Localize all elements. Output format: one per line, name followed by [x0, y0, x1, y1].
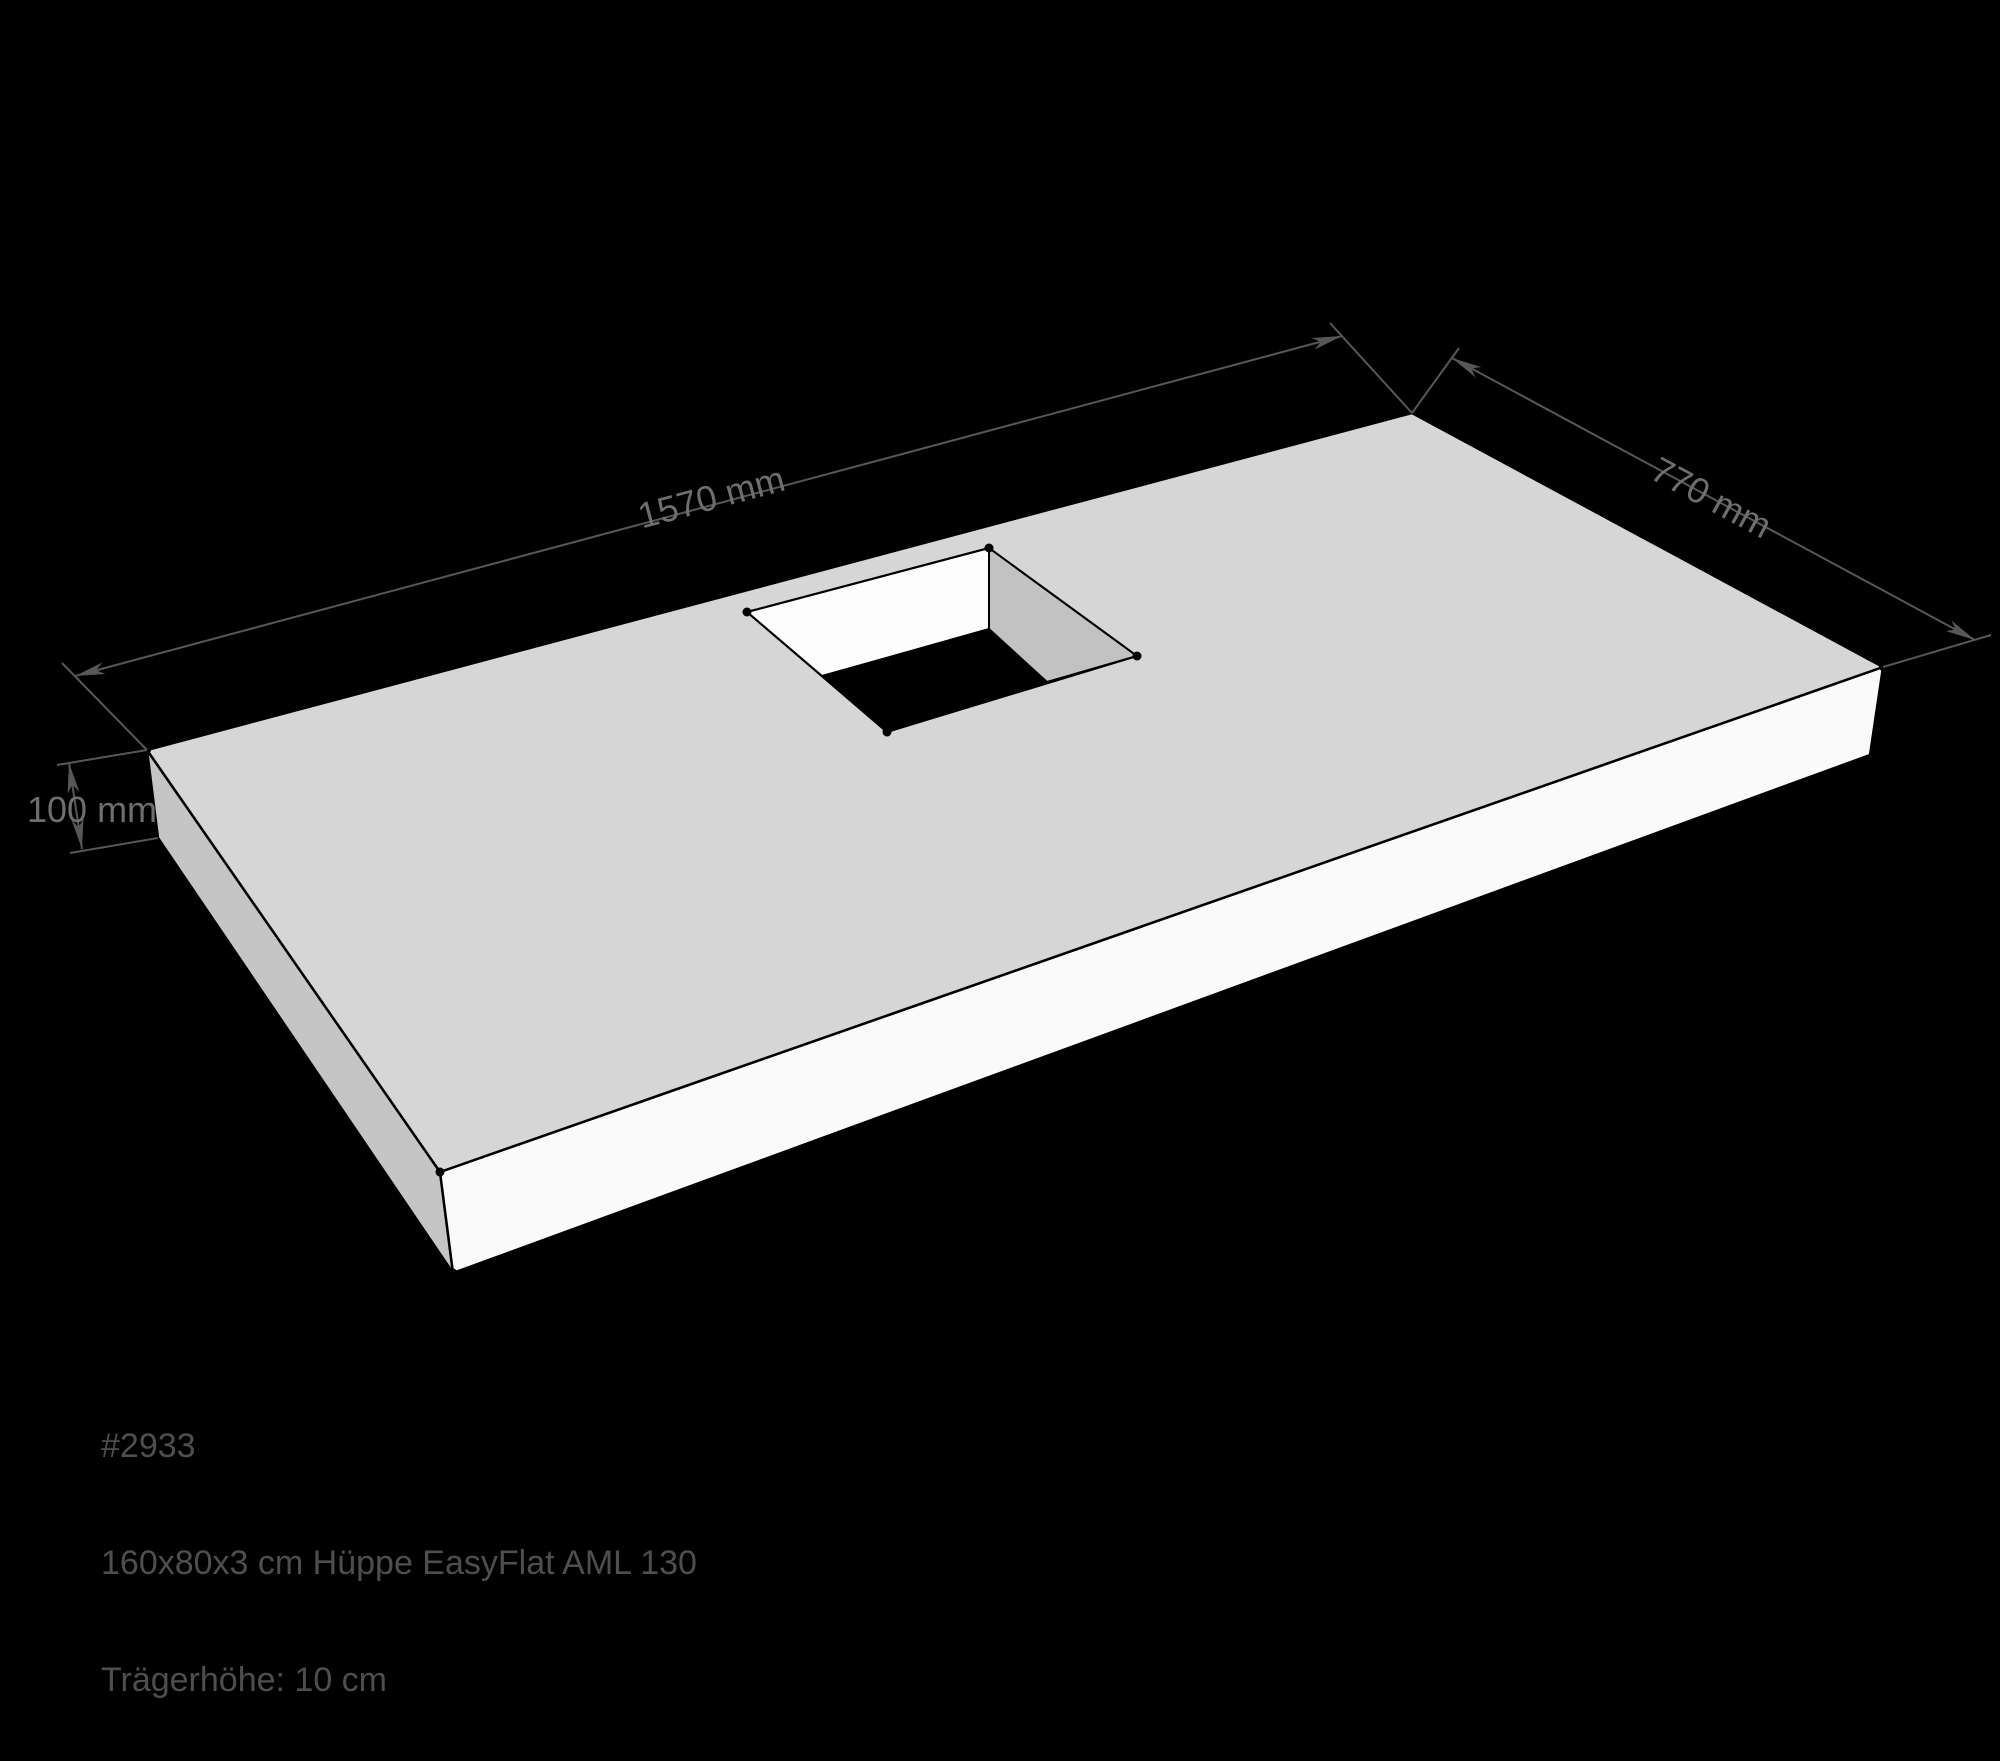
hole-corner-dot — [985, 544, 994, 553]
technical-drawing-canvas: 1570 mm 770 mm 100 mm #2933 160x80x3 cm … — [0, 0, 2000, 1761]
product-support-height: Trägerhöhe: 10 cm — [101, 1661, 697, 1700]
hole-corner-dot — [883, 728, 892, 737]
depth-dimension-label: 770 mm — [1644, 448, 1778, 546]
depth-extension-line-left — [1412, 348, 1459, 413]
length-extension-line-left — [62, 663, 147, 750]
slab-corner-dot — [449, 1269, 458, 1278]
product-description: 160x80x3 cm Hüppe EasyFlat AML 130 — [101, 1544, 697, 1583]
length-dimension-label: 1570 mm — [633, 458, 789, 537]
height-dimension-label: 100 mm — [27, 789, 157, 830]
length-extension-line-right — [1330, 323, 1412, 413]
height-extension-line-top — [57, 750, 147, 765]
slab-corner-dot — [436, 1168, 445, 1177]
slab-body — [147, 413, 1883, 1273]
product-id: #2933 — [101, 1427, 697, 1466]
hole-corner-dot — [1133, 652, 1142, 661]
height-extension-line-bottom — [70, 838, 158, 853]
hole-corner-dot — [743, 608, 752, 617]
product-info-block: #2933 160x80x3 cm Hüppe EasyFlat AML 130… — [101, 1349, 697, 1761]
